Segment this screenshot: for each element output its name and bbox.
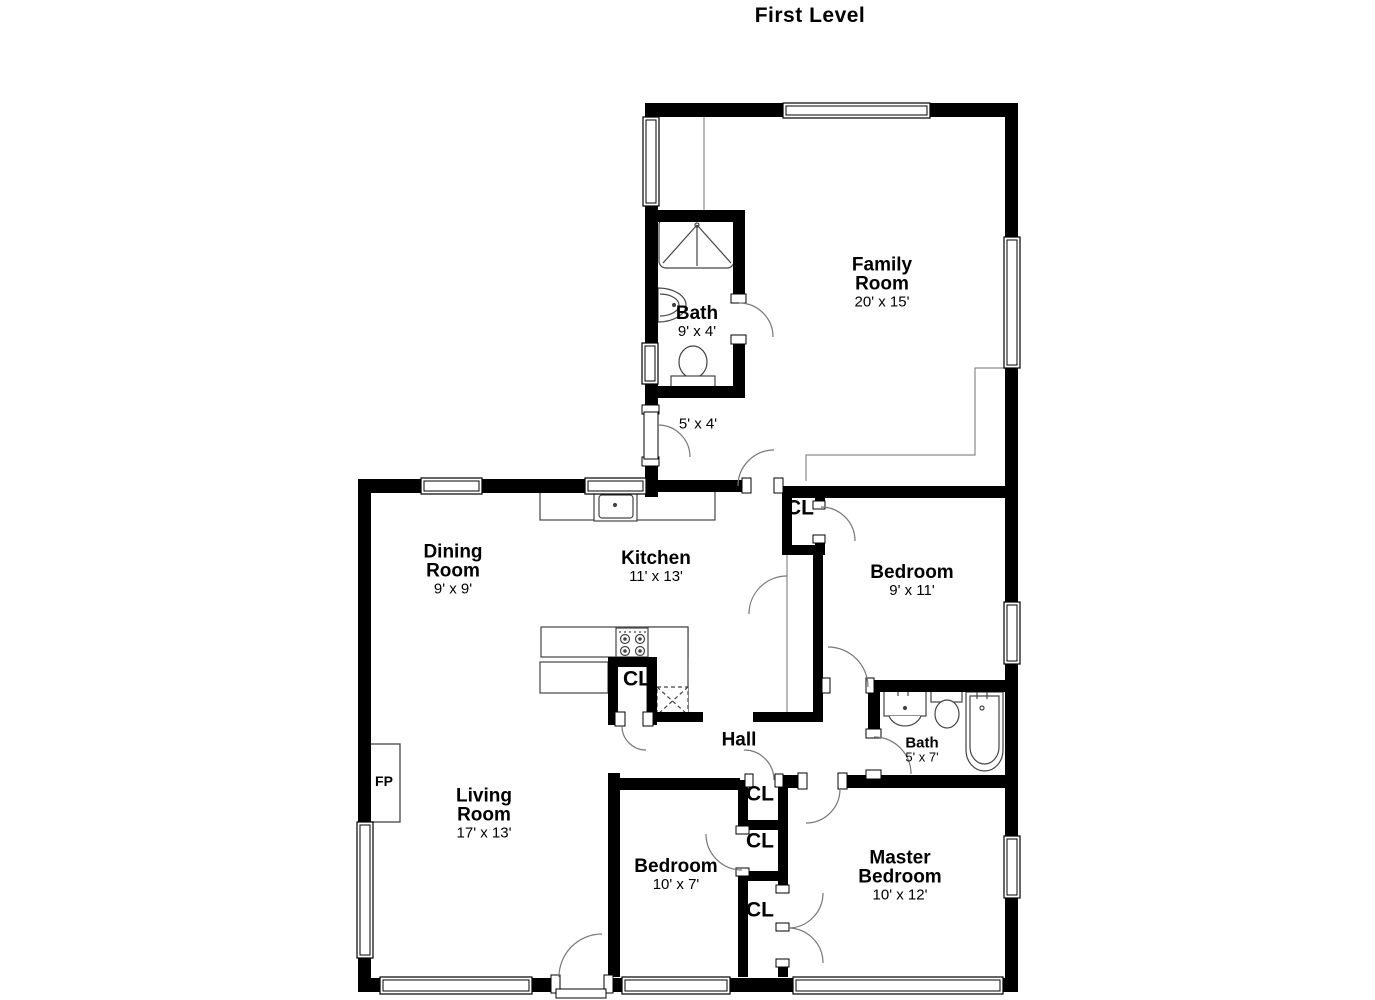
counter <box>540 662 608 693</box>
room-label-bath-upper: Bath 9' x 4' <box>676 304 718 340</box>
bedroom1-door-swing <box>828 647 868 687</box>
closet-label-master: CL <box>746 900 774 921</box>
window <box>643 117 659 206</box>
room-label-hall: Hall <box>722 731 757 750</box>
reference-lines <box>704 117 1006 712</box>
room-dims: 10' x 12' <box>873 887 928 904</box>
toilet-bowl <box>935 700 959 728</box>
window <box>793 977 1003 994</box>
room-label-dining-room: Dining Room 9' x 9' <box>403 543 503 598</box>
room-name: Bath <box>676 304 718 323</box>
window <box>421 478 482 494</box>
room-label-kitchen: Kitchen 11' x 13' <box>621 549 691 585</box>
room-name: Bath <box>905 736 938 751</box>
upper-bath-door-swing <box>739 303 773 337</box>
room-dims: 17' x 13' <box>457 825 512 842</box>
floor-plan: First Level Family Room 20' x 15' Bath 9… <box>0 0 1375 1000</box>
room-dims: 11' x 13' <box>629 568 683 585</box>
room-name: Family Room <box>832 256 932 294</box>
window <box>1004 237 1020 368</box>
window <box>783 103 930 118</box>
room-name: Hall <box>722 731 757 750</box>
closet-label-bedroom2: CL <box>746 831 774 852</box>
entry-door-slab <box>644 412 658 459</box>
kitchen-sink-drain <box>614 504 617 507</box>
room-name: Master Bedroom <box>835 849 965 887</box>
closet-label-hall: CL <box>746 784 774 805</box>
bathtub <box>966 692 1003 771</box>
room-dims: 5' x 4' <box>679 416 717 433</box>
floor-plan-drawing <box>0 0 1375 1000</box>
room-name: Dining Room <box>403 543 503 581</box>
bedroom1-closet-door-swing <box>821 507 855 541</box>
room-label-bedroom2: Bedroom 10' x 7' <box>634 857 717 893</box>
kitchen-closet-door-swing <box>622 726 646 750</box>
window <box>642 343 658 384</box>
room-dims: 9' x 4' <box>678 323 716 340</box>
window <box>380 977 532 994</box>
master-door-swing <box>806 789 840 823</box>
room-label-living-room: Living Room 17' x 13' <box>434 787 534 842</box>
vanity <box>884 691 926 716</box>
room-dims: 10' x 7' <box>653 876 700 893</box>
window <box>357 822 373 958</box>
closet-label-kitchen: CL <box>623 669 651 690</box>
room-dims: 9' x 11' <box>889 582 934 599</box>
window <box>622 977 730 994</box>
room-label-bath-hall: Bath 5' x 7' <box>905 736 938 765</box>
kitchen-hall-door-swing <box>749 576 787 614</box>
room-name: Kitchen <box>621 549 691 568</box>
hall-bath-fixtures <box>884 690 1003 771</box>
room-label-entry: 5' x 4' <box>679 416 717 433</box>
master-closet-door-swing <box>788 928 823 963</box>
master-closet-door-swing <box>788 893 823 928</box>
room-label-master-bedroom: Master Bedroom 10' x 12' <box>835 849 965 904</box>
room-dims: 9' x 9' <box>434 581 472 598</box>
window <box>1004 602 1020 664</box>
room-name: Bedroom <box>870 563 953 582</box>
page-title: First Level <box>755 4 866 28</box>
sink-bowl <box>889 716 921 726</box>
room-label-family-room: Family Room 20' x 15' <box>832 256 932 311</box>
front-door-swing <box>559 934 602 977</box>
room-dims: 20' x 15' <box>855 294 910 311</box>
window <box>585 478 646 494</box>
room-dims: 5' x 7' <box>905 751 938 765</box>
room-label-bedroom1: Bedroom 9' x 11' <box>870 563 953 599</box>
toilet-bowl <box>679 346 707 378</box>
room-name: Living Room <box>434 787 534 825</box>
front-door-threshold <box>556 989 606 998</box>
utility-dashed-area <box>657 687 688 715</box>
fireplace-label: FP <box>375 773 393 789</box>
room-name: Bedroom <box>634 857 717 876</box>
closet-label-bedroom1: CL <box>786 498 814 519</box>
window <box>1004 836 1020 898</box>
